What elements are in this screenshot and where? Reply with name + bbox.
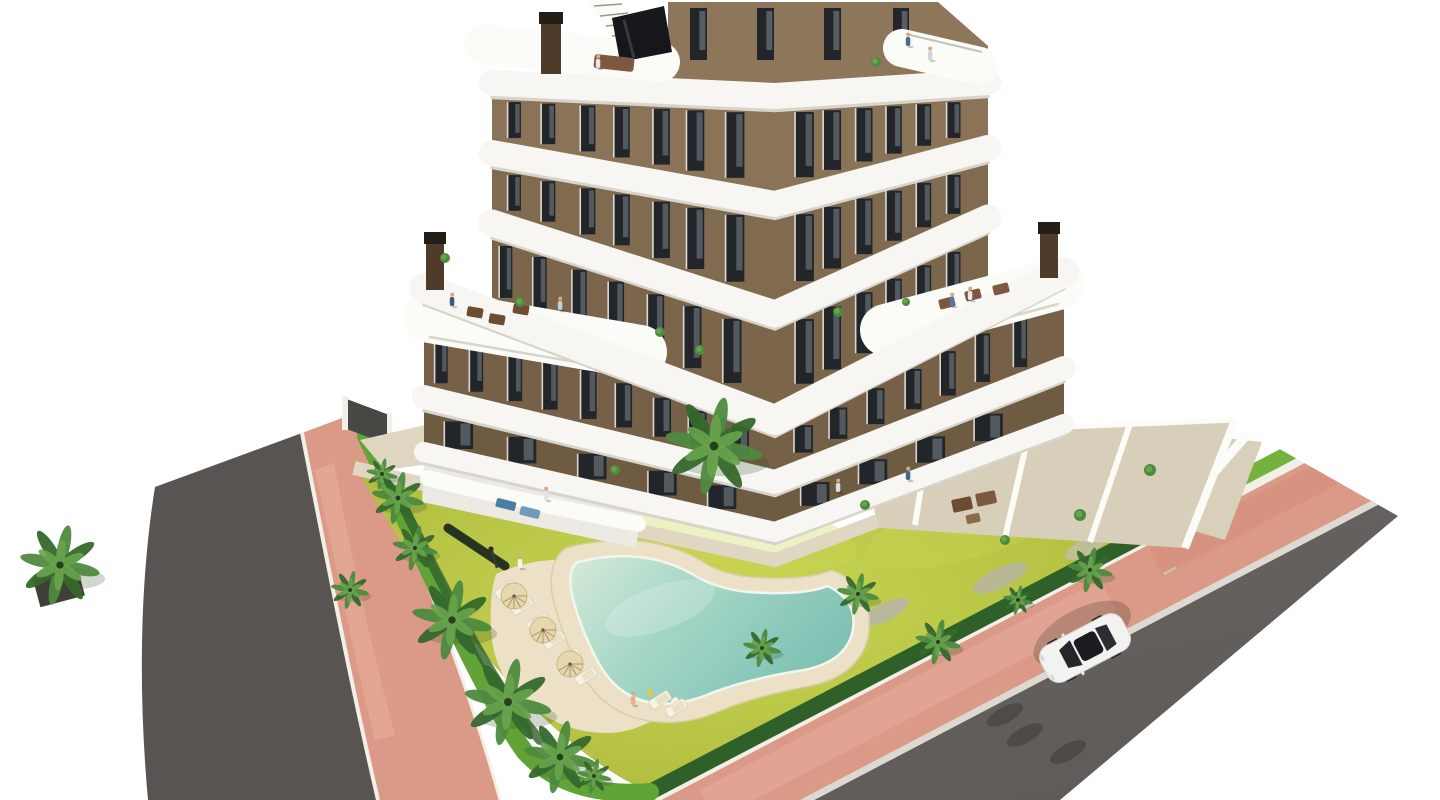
plant-pot-highlight <box>834 308 840 314</box>
window-pane <box>865 110 871 153</box>
window-pane <box>549 106 554 138</box>
window-frame <box>577 454 579 480</box>
person-body <box>544 491 549 500</box>
window-frame <box>647 471 649 496</box>
window-pane <box>833 209 839 258</box>
window-pane <box>877 390 883 419</box>
palm-crown <box>348 588 352 592</box>
palm-crown <box>1016 598 1020 602</box>
window-pane <box>766 11 772 50</box>
penthouse-terrace-right <box>902 48 980 66</box>
chimney <box>1040 230 1058 278</box>
palm-crown <box>710 442 719 451</box>
window-pane <box>915 371 920 403</box>
person-body <box>518 559 523 568</box>
window-frame <box>540 181 542 222</box>
person-body <box>631 696 636 705</box>
window-pane <box>724 487 734 506</box>
parasol-pole <box>512 594 515 597</box>
person-body <box>836 483 841 492</box>
plant-pot-highlight <box>516 298 522 304</box>
window-pane <box>589 190 594 227</box>
window-pane <box>664 400 670 431</box>
window-pane <box>895 108 900 146</box>
plant-pot-highlight <box>1001 536 1007 542</box>
window-frame <box>507 437 509 464</box>
window-pane <box>806 114 812 166</box>
render-canvas: Aerial 3D architectural render: white-an… <box>0 0 1440 800</box>
palm-crown <box>380 472 384 476</box>
window-pane <box>955 104 960 133</box>
window-frame <box>885 191 887 241</box>
window-pane <box>664 473 674 493</box>
window-frame <box>652 109 654 165</box>
palm-crown <box>592 774 596 778</box>
window-frame <box>939 351 941 395</box>
window-frame <box>686 208 688 269</box>
window-frame <box>507 175 509 211</box>
plant-pot-highlight <box>903 299 907 303</box>
window-pane <box>699 11 705 50</box>
person-shadow <box>908 46 914 48</box>
plant-pot-highlight <box>861 501 867 507</box>
chimney <box>541 20 561 74</box>
window-frame <box>579 105 581 151</box>
window-pane <box>549 183 554 215</box>
window-pane <box>806 321 812 373</box>
palm-crown <box>448 616 455 623</box>
window-frame <box>683 306 685 368</box>
window-pane <box>736 114 742 167</box>
window-frame <box>915 104 917 146</box>
person-body <box>450 297 455 306</box>
window-pane <box>806 216 812 270</box>
plant-pot-highlight <box>656 328 662 334</box>
plant-pot-highlight <box>1146 466 1153 473</box>
person-body <box>558 301 563 310</box>
window-pane <box>990 416 1000 438</box>
palm-crown <box>760 646 764 650</box>
window-pane <box>663 111 669 156</box>
person-head <box>928 47 932 51</box>
plant-pot-highlight <box>441 254 447 260</box>
chimney-cap <box>1038 222 1060 234</box>
window-pane <box>1021 316 1026 358</box>
window-frame <box>498 246 500 298</box>
person-shadow <box>452 306 458 308</box>
window-pane <box>895 193 900 233</box>
person-head <box>558 297 562 301</box>
window-pane <box>461 424 471 446</box>
window-frame <box>542 356 544 410</box>
window-pane <box>925 185 930 221</box>
window-pane <box>515 177 519 206</box>
window-frame <box>653 398 655 437</box>
chimney-cap <box>424 232 446 244</box>
person-body <box>596 59 601 68</box>
person-head <box>906 33 910 37</box>
window-frame <box>579 188 581 234</box>
window-frame <box>686 110 688 170</box>
person-head <box>836 479 840 483</box>
person-head <box>950 293 954 297</box>
window-frame <box>822 207 824 269</box>
plant-pot-highlight <box>611 466 617 472</box>
person-head <box>544 487 548 491</box>
window-frame <box>975 333 977 381</box>
window-pane <box>663 204 669 249</box>
window-pane <box>625 385 631 420</box>
window-pane <box>623 109 628 149</box>
window-frame <box>540 104 542 145</box>
window-pane <box>984 335 989 374</box>
window-pane <box>949 353 954 389</box>
window-pane <box>524 439 534 460</box>
window-pane <box>865 200 871 245</box>
window-frame <box>946 175 948 214</box>
window-pane <box>817 484 827 503</box>
person-shadow <box>952 306 958 308</box>
tree-shadow <box>1143 772 1186 800</box>
window-pane <box>733 321 739 372</box>
plant-pot-highlight <box>872 58 878 64</box>
lamp-head <box>488 546 493 551</box>
person-head <box>450 293 454 297</box>
window-frame <box>855 108 857 161</box>
window-pane <box>839 409 845 434</box>
window-pane <box>833 11 839 50</box>
parasol-pole <box>568 662 571 665</box>
window-frame <box>794 319 796 384</box>
window-pane <box>594 456 604 476</box>
person-shadow <box>560 310 566 312</box>
window-pane <box>541 259 546 302</box>
window-pane <box>932 438 942 459</box>
window-frame <box>793 425 795 452</box>
parasol <box>501 583 527 609</box>
window-pane <box>589 107 594 144</box>
window-frame <box>946 102 948 138</box>
palm-crown <box>504 698 512 706</box>
window-frame <box>614 383 616 427</box>
parasol <box>530 617 556 643</box>
window-frame <box>725 215 727 282</box>
chimney-cap <box>539 12 563 24</box>
window-frame <box>613 194 615 245</box>
palm-crown <box>56 561 63 568</box>
window-frame <box>828 407 830 438</box>
parasol-pole <box>541 628 544 631</box>
person-body <box>906 37 911 46</box>
window-frame <box>822 307 824 370</box>
person-shadow <box>970 300 976 302</box>
person-head <box>518 555 522 559</box>
person-head <box>968 287 972 291</box>
window-pane <box>623 196 628 237</box>
window-frame <box>722 319 724 383</box>
window-pane <box>736 217 742 271</box>
person-shadow <box>546 500 552 502</box>
person-shadow <box>598 68 604 70</box>
palm-crown <box>856 592 860 596</box>
window-pane <box>590 372 595 411</box>
window-frame <box>866 388 868 424</box>
palm-crown <box>936 640 940 644</box>
window-pane <box>507 248 511 289</box>
plant-pot-highlight <box>696 346 702 352</box>
window-frame <box>855 292 857 353</box>
window-frame <box>580 370 582 419</box>
entry-gate-post <box>342 396 348 430</box>
window-pane <box>833 112 839 160</box>
palm-crown <box>557 754 564 761</box>
window-pane <box>697 210 703 259</box>
person-shadow <box>838 492 844 494</box>
window-frame <box>794 112 796 177</box>
window-pane <box>955 177 960 208</box>
person-body <box>950 297 955 306</box>
person-body <box>968 291 973 300</box>
window-pane <box>805 427 811 449</box>
window-pane <box>925 106 930 139</box>
window-frame <box>885 106 887 153</box>
window-frame <box>444 422 446 450</box>
window-frame <box>904 369 906 409</box>
window-frame <box>613 107 615 157</box>
window-pane <box>515 104 519 133</box>
window-frame <box>794 214 796 281</box>
window-frame <box>725 112 727 178</box>
plant-pot-highlight <box>1076 511 1083 518</box>
window-frame <box>652 202 654 259</box>
window-frame <box>507 102 509 138</box>
palm-crown <box>413 546 417 550</box>
person-body <box>906 471 911 480</box>
window-pane <box>875 461 885 481</box>
window-pane <box>580 272 585 317</box>
window-frame <box>822 110 824 170</box>
person-shadow <box>633 705 639 707</box>
window-frame <box>915 183 917 228</box>
person-head <box>906 467 910 471</box>
palm-crown <box>1088 568 1092 572</box>
person-head <box>631 692 635 696</box>
chimney <box>426 240 444 290</box>
palm-crown <box>396 496 401 501</box>
window-pane <box>697 112 703 160</box>
balcony-band <box>492 82 988 96</box>
tree-shadow <box>1191 783 1234 800</box>
parasol <box>557 651 583 677</box>
window-frame <box>855 198 857 254</box>
person-body <box>928 51 933 60</box>
window-frame <box>532 257 534 311</box>
person-head <box>596 55 600 59</box>
person-shadow <box>520 568 526 570</box>
person-shadow <box>930 60 936 62</box>
person-shadow <box>908 480 914 482</box>
scene-svg: Aerial 3D architectural render: white-an… <box>0 0 1440 800</box>
